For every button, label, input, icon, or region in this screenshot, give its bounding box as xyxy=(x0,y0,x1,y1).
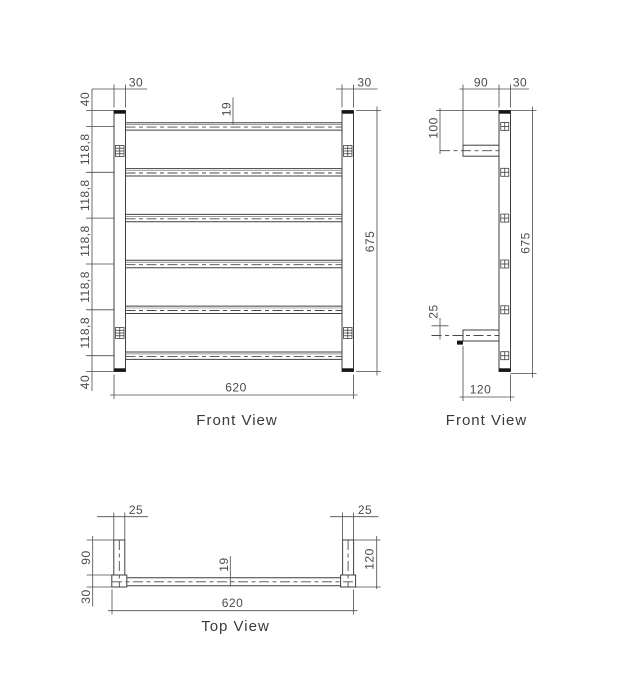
dim-side-post-depth: 30 xyxy=(513,76,527,90)
dim-side-overall-height: 675 xyxy=(519,232,533,254)
side-bracket-offset-dimension xyxy=(432,318,449,340)
dim-front-overall-width: 620 xyxy=(225,381,247,395)
top-left-bracket xyxy=(112,540,127,587)
dim-top-bracket-width-left: 25 xyxy=(129,503,143,517)
dim-side-bracket-offset: 25 xyxy=(427,304,441,318)
side-post xyxy=(499,111,511,372)
dim-top-overall-depth: 120 xyxy=(363,548,377,570)
dim-front-post-width-right: 30 xyxy=(357,76,371,90)
dim-front-spacing-3: 118,8 xyxy=(78,225,92,257)
dim-front-spacing-1: 118,8 xyxy=(78,133,92,165)
dim-side-overall-depth: 120 xyxy=(470,383,492,397)
towel-rail-technical-drawing: 40 118,8 118,8 118,8 118,8 118,8 40 30 3… xyxy=(0,0,624,700)
side-view-label: Front View xyxy=(446,412,527,429)
dim-side-top-to-bracket: 100 xyxy=(427,117,441,139)
front-bars xyxy=(126,123,343,360)
side-joint-marks xyxy=(501,122,509,359)
dim-side-bracket-length: 90 xyxy=(474,76,488,90)
dim-top-bar-diameter: 19 xyxy=(217,557,231,571)
dim-front-top-offset: 40 xyxy=(78,92,92,106)
side-upper-bracket xyxy=(440,145,499,156)
front-view: 40 118,8 118,8 118,8 118,8 118,8 40 30 3… xyxy=(78,76,381,430)
dim-top-overall-width: 620 xyxy=(222,596,244,610)
drawing-sheet: 40 118,8 118,8 118,8 118,8 118,8 40 30 3… xyxy=(0,0,624,700)
dim-top-bracket-length: 90 xyxy=(79,550,93,564)
side-top-to-bracket-dimension xyxy=(436,108,499,154)
front-bracket-marks xyxy=(116,146,353,339)
dim-front-spacing-5: 118,8 xyxy=(78,317,92,349)
dim-top-bracket-width-right: 25 xyxy=(358,503,372,517)
top-view-label: Top View xyxy=(201,618,270,635)
side-view: 90 30 100 25 675 120 Front View xyxy=(427,76,537,430)
dim-top-post-depth: 30 xyxy=(79,589,93,603)
top-bar-tube xyxy=(112,578,356,586)
front-view-label: Front View xyxy=(196,412,277,429)
dim-front-spacing-4: 118,8 xyxy=(78,271,92,303)
dim-front-bar-diameter: 19 xyxy=(220,102,234,116)
top-right-bracket xyxy=(341,540,356,587)
dim-front-spacing-2: 118,8 xyxy=(78,179,92,211)
dim-front-post-width-left: 30 xyxy=(129,76,143,90)
top-view: 25 25 90 30 120 19 xyxy=(79,503,381,635)
side-lower-bracket xyxy=(432,330,500,345)
side-top-dimensions xyxy=(460,85,530,146)
dim-front-overall-height: 675 xyxy=(363,231,377,253)
dim-front-bottom-offset: 40 xyxy=(78,375,92,389)
